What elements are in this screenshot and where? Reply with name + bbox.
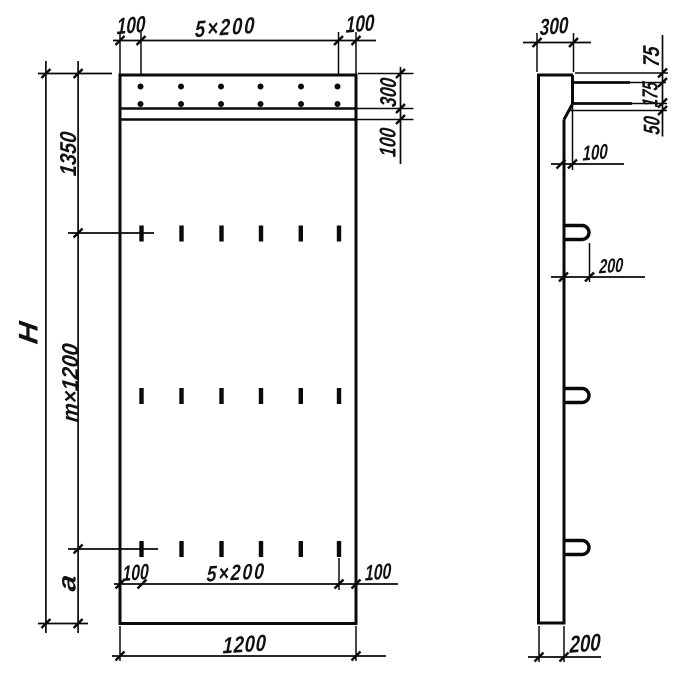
svg-text:100: 100 bbox=[117, 12, 147, 39]
svg-text:100: 100 bbox=[365, 560, 392, 586]
svg-text:m×1200: m×1200 bbox=[57, 342, 83, 424]
svg-text:50: 50 bbox=[640, 115, 665, 136]
svg-text:200: 200 bbox=[598, 253, 624, 278]
svg-text:1200: 1200 bbox=[222, 631, 267, 660]
svg-text:175: 175 bbox=[639, 80, 663, 108]
svg-text:100: 100 bbox=[346, 11, 376, 38]
svg-text:100: 100 bbox=[582, 139, 608, 165]
svg-text:300: 300 bbox=[377, 76, 402, 108]
svg-text:5×200: 5×200 bbox=[206, 560, 267, 587]
svg-text:100: 100 bbox=[122, 560, 149, 586]
svg-text:300: 300 bbox=[540, 13, 570, 40]
svg-text:75: 75 bbox=[639, 44, 665, 67]
svg-text:100: 100 bbox=[376, 126, 401, 158]
svg-text:200: 200 bbox=[568, 628, 600, 659]
svg-text:1350: 1350 bbox=[56, 130, 82, 177]
svg-text:5×200: 5×200 bbox=[195, 13, 257, 43]
